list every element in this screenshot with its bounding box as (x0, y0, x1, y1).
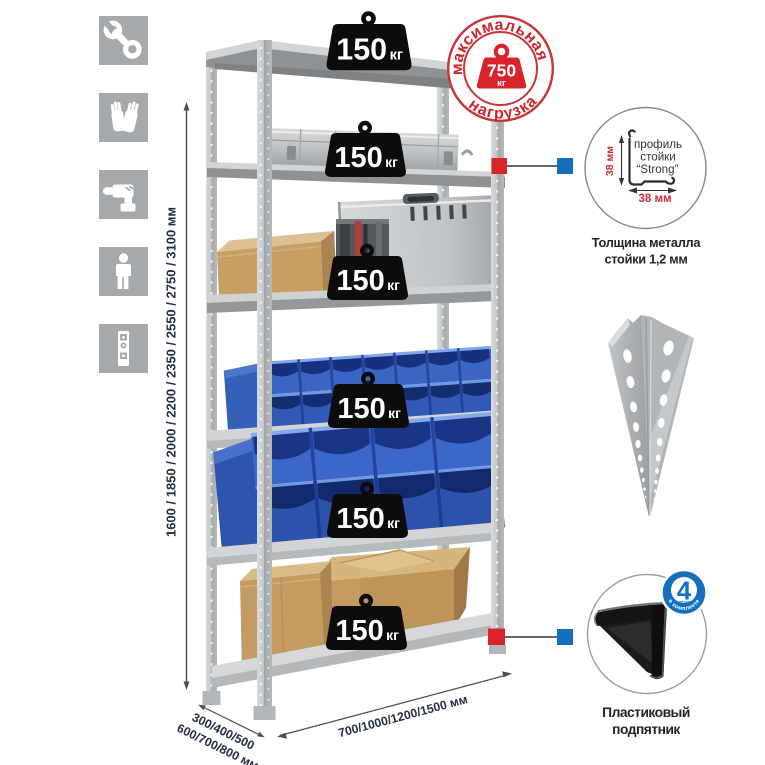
svg-text:штуки: штуки (678, 600, 691, 605)
svg-text:подпятник: подпятник (612, 722, 680, 737)
svg-text:38 мм: 38 мм (638, 193, 671, 205)
svg-text:профиль: профиль (634, 138, 682, 151)
svg-text:Пластиковый: Пластиковый (602, 705, 690, 720)
svg-text:“Strong”: “Strong” (637, 163, 679, 176)
svg-text:стойки: стойки (640, 151, 675, 164)
svg-text:кг: кг (497, 78, 506, 89)
svg-text:1600 / 1850 / 2000 / 2200 / 23: 1600 / 1850 / 2000 / 2200 / 2350 / 2550 … (164, 207, 179, 537)
svg-text:38 мм: 38 мм (604, 146, 616, 176)
svg-text:Толщина металла: Толщина металла (592, 235, 702, 250)
svg-text:стойки 1,2 мм: стойки 1,2 мм (604, 252, 687, 267)
